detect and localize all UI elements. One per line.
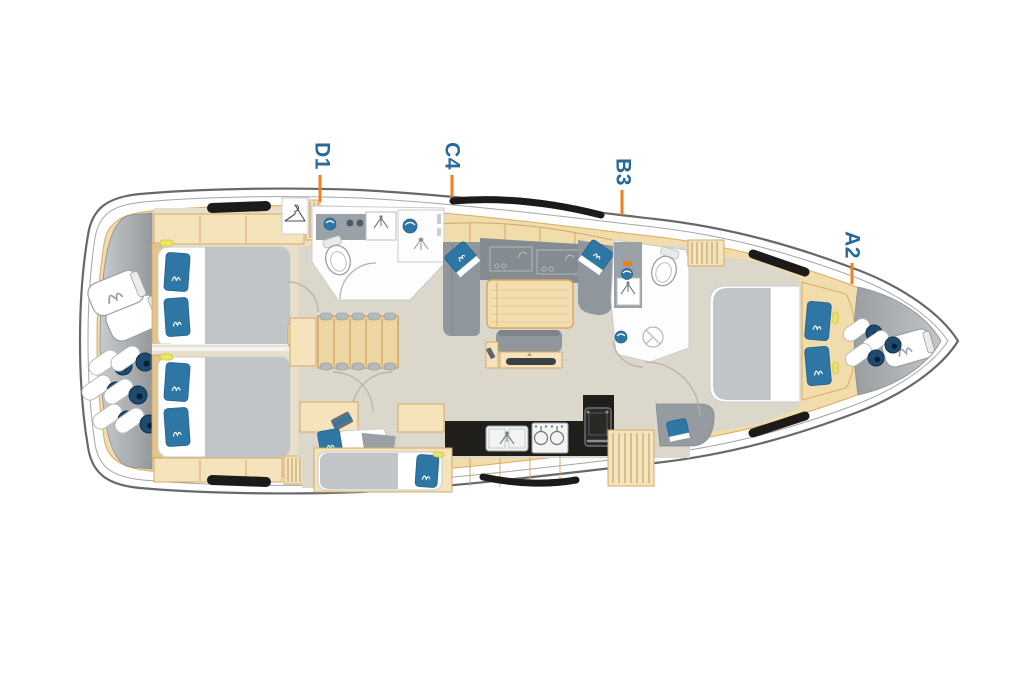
pillow-icon [164,297,191,337]
cabin-marker-c4: C4 [441,142,464,170]
reading-light [160,354,173,360]
forward-head [611,240,689,367]
reading-light [433,451,444,457]
cabin-marker-b3: B3 [612,158,635,186]
hull-window-icon [212,480,266,482]
wardrobe [688,240,724,266]
yacht-deck-plan: D1 C4 B3 A2 [0,0,1024,683]
saloon-table-icon [487,280,573,328]
cabin-marker-a2: A2 [841,231,864,259]
vanity-counter [316,214,368,240]
side-board [290,318,316,366]
wardrobe [282,198,308,234]
reading-light [833,312,838,324]
hull-window-icon [212,206,266,208]
pillow-icon [804,346,831,386]
yacht-deck-plan-page: D1 C4 B3 A2 [0,0,1024,683]
pillow-icon [164,362,191,402]
reading-light [160,240,173,246]
cabin-marker-d1: D1 [311,142,334,170]
towel-icon [324,218,336,230]
bed-blanket [205,357,290,457]
pillow-icon [164,407,191,447]
tap-knob [357,220,364,227]
pillow-icon [415,454,439,487]
companionway-steps-icon [318,316,398,368]
pillow-icon [164,252,191,292]
pillow-icon [804,301,831,341]
towel-icon [615,331,627,343]
bed-blanket [713,288,770,400]
soap-item [623,261,632,266]
reading-light [833,362,838,374]
towel-icon [403,219,417,233]
tap-knob [347,220,354,227]
tv-icon [506,358,556,365]
towel-icon [622,269,633,280]
bed-blanket [320,453,398,489]
bed-blanket [205,247,290,347]
towel-icon [666,418,690,442]
cabin-shelf [398,404,444,432]
